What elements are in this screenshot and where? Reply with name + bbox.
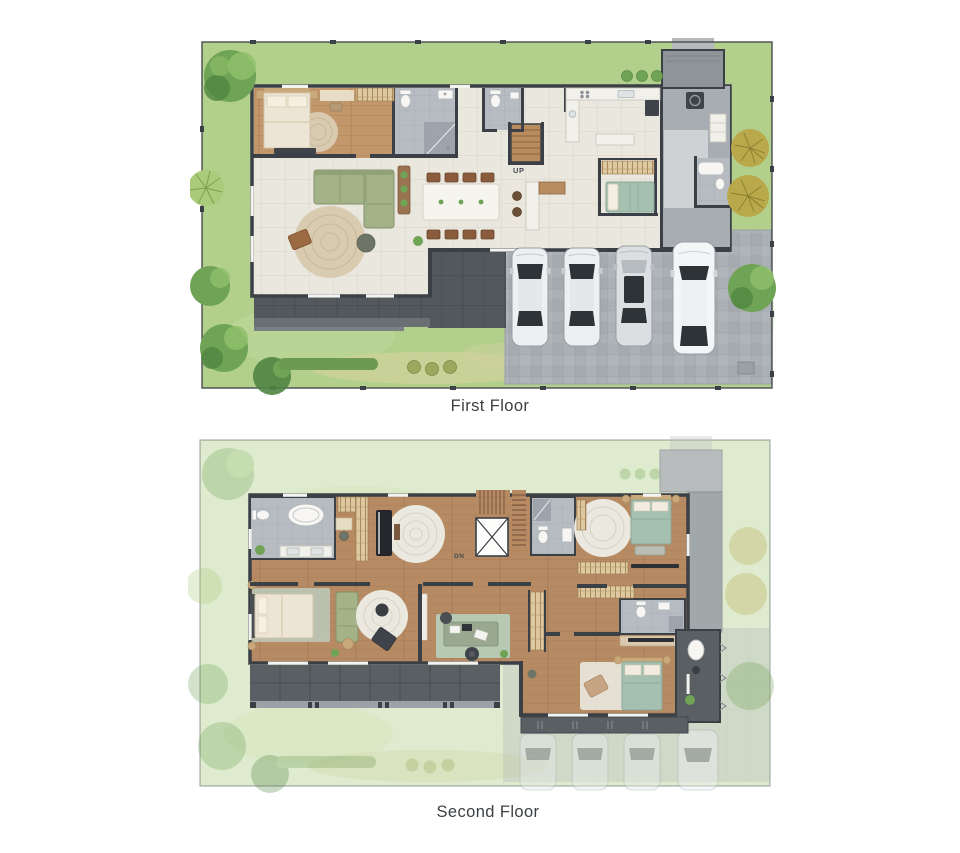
nightstand xyxy=(614,656,622,664)
bush-icon xyxy=(622,71,633,82)
bench xyxy=(635,546,665,555)
dresser xyxy=(577,500,586,530)
laundry-cabinet xyxy=(710,114,726,142)
stool xyxy=(528,670,537,679)
car xyxy=(562,248,603,346)
potted-plant xyxy=(413,236,423,246)
toilet xyxy=(257,510,270,520)
stair-label-up: UP xyxy=(513,166,525,175)
utility-box xyxy=(738,362,754,374)
coffee-table xyxy=(376,604,389,617)
tree-icon xyxy=(728,264,776,312)
breakfast-counter xyxy=(526,182,539,230)
desk xyxy=(336,518,352,530)
olive-tree-icon xyxy=(727,175,769,217)
kitchen-counter xyxy=(566,88,660,100)
tv xyxy=(628,638,674,642)
toilet xyxy=(636,606,646,618)
nightstand xyxy=(663,656,671,664)
toilet xyxy=(401,95,411,108)
hedge xyxy=(278,358,378,370)
wardrobe-column xyxy=(356,497,368,561)
first-floor-plan: UP xyxy=(190,36,790,396)
bush-icon xyxy=(637,71,648,82)
second-floor-plan: DN xyxy=(188,434,788,796)
chair xyxy=(440,612,452,624)
fridge xyxy=(645,100,659,116)
bush-icon xyxy=(408,361,421,374)
closet-shelf xyxy=(578,562,628,574)
nightstand xyxy=(256,90,264,99)
desk xyxy=(320,90,354,101)
tree-icon xyxy=(200,324,248,372)
bush-icon xyxy=(652,71,663,82)
piano-bench xyxy=(394,524,400,540)
toilet xyxy=(491,95,501,108)
first-floor-caption: First Floor xyxy=(190,396,790,417)
pillow xyxy=(644,665,660,675)
kitchen-island xyxy=(596,134,634,145)
pillow xyxy=(608,184,618,210)
second-floor-caption: Second Floor xyxy=(188,802,788,823)
bush-icon xyxy=(426,363,439,376)
pillow xyxy=(267,96,286,107)
balcony-front xyxy=(250,665,500,708)
cabinet xyxy=(539,182,565,194)
bedroom-sofa xyxy=(336,592,358,642)
washer xyxy=(686,92,704,109)
stool xyxy=(513,208,522,217)
sofa-chaise xyxy=(364,170,394,228)
plant-icon xyxy=(685,695,695,705)
pouf xyxy=(357,234,375,252)
sink xyxy=(562,528,572,542)
side-table xyxy=(622,495,630,503)
tree-icon xyxy=(190,266,230,306)
side-table xyxy=(343,639,354,650)
dining-chair xyxy=(427,173,440,182)
sink xyxy=(658,602,670,610)
headboard xyxy=(264,88,310,93)
chair xyxy=(340,532,349,541)
pillow xyxy=(288,96,307,107)
side-roof xyxy=(688,492,722,632)
basin xyxy=(688,640,704,660)
porch-roof xyxy=(660,450,722,492)
plant-icon xyxy=(500,650,508,658)
wardrobe-column xyxy=(530,592,544,650)
plant-icon xyxy=(331,649,339,657)
side-balcony xyxy=(676,630,726,722)
rear-terrace xyxy=(521,717,688,733)
tree-icon xyxy=(204,50,256,102)
wardrobe xyxy=(602,161,654,174)
wardrobe xyxy=(356,88,394,101)
toilet-tank xyxy=(400,90,411,95)
toilet xyxy=(538,531,548,544)
bathtub xyxy=(698,162,724,175)
plant-icon xyxy=(255,545,265,555)
maid-room xyxy=(602,161,654,212)
car xyxy=(510,248,551,346)
nightstand xyxy=(248,642,256,650)
suv xyxy=(671,242,718,354)
bush-icon xyxy=(444,361,457,374)
kitchen-sink xyxy=(618,91,634,98)
stool xyxy=(513,192,522,201)
tv-console xyxy=(274,148,316,154)
desk-chair xyxy=(330,103,342,111)
pillow xyxy=(258,616,267,633)
side-table xyxy=(672,495,680,503)
kitchen-counter-side xyxy=(566,100,579,142)
sink xyxy=(510,92,519,99)
wardrobe xyxy=(338,497,358,512)
floorplan-sheet: UP xyxy=(0,0,960,853)
tv-shelf xyxy=(631,564,679,568)
pillow xyxy=(652,502,668,511)
olive-tree-icon xyxy=(731,129,769,167)
pillow xyxy=(634,502,650,511)
laptop xyxy=(462,624,472,631)
pillow xyxy=(258,597,267,614)
car xyxy=(614,246,655,346)
toilet xyxy=(715,178,724,190)
nightstand xyxy=(310,90,318,99)
stair-label-down: DN xyxy=(454,553,464,560)
pillow xyxy=(625,665,641,675)
